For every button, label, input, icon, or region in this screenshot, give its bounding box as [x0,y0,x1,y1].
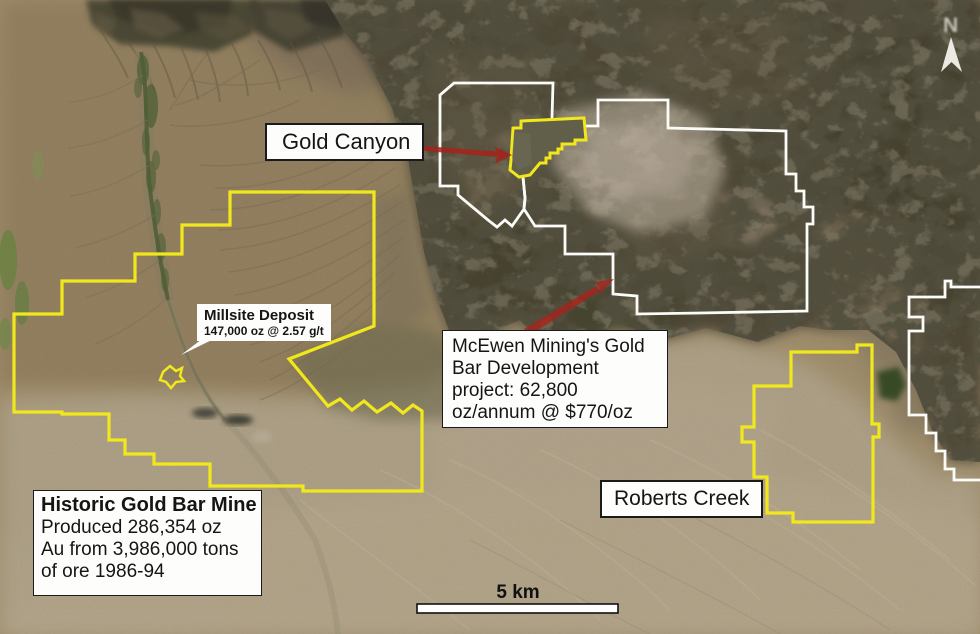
svg-text:N: N [943,14,958,37]
